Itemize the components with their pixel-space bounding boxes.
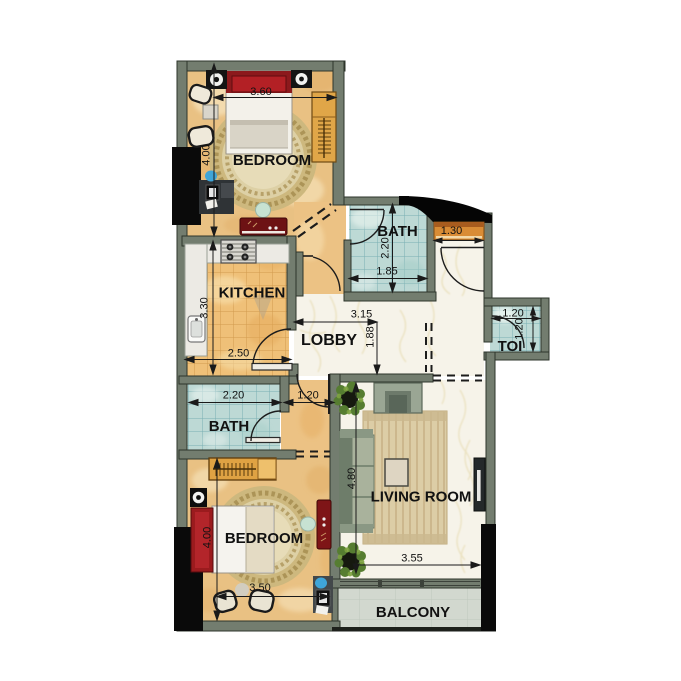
svg-text:1.20: 1.20 bbox=[514, 318, 526, 339]
svg-text:1.20: 1.20 bbox=[297, 390, 318, 402]
svg-text:LIVING ROOM: LIVING ROOM bbox=[371, 489, 472, 506]
svg-text:2.20: 2.20 bbox=[380, 237, 392, 258]
svg-text:2.50: 2.50 bbox=[228, 348, 249, 360]
svg-text:KITCHEN: KITCHEN bbox=[219, 285, 286, 302]
svg-text:1.30: 1.30 bbox=[441, 225, 462, 237]
svg-text:3.55: 3.55 bbox=[401, 553, 422, 565]
svg-text:4.00: 4.00 bbox=[202, 527, 214, 548]
svg-text:1.88: 1.88 bbox=[365, 326, 377, 347]
svg-text:LOBBY: LOBBY bbox=[301, 332, 357, 349]
svg-text:3.30: 3.30 bbox=[199, 297, 211, 318]
svg-text:4.00: 4.00 bbox=[201, 144, 213, 165]
svg-text:BEDROOM: BEDROOM bbox=[233, 152, 311, 169]
svg-text:2.20: 2.20 bbox=[223, 390, 244, 402]
svg-text:1.85: 1.85 bbox=[376, 266, 397, 278]
svg-text:3.15: 3.15 bbox=[351, 309, 372, 321]
svg-text:4.80: 4.80 bbox=[346, 468, 358, 489]
svg-text:3.60: 3.60 bbox=[250, 86, 271, 98]
svg-text:BEDROOM: BEDROOM bbox=[225, 530, 303, 547]
svg-text:1.20: 1.20 bbox=[502, 308, 523, 320]
svg-text:BATH: BATH bbox=[209, 418, 250, 435]
svg-text:BALCONY: BALCONY bbox=[376, 604, 450, 621]
svg-text:3.50: 3.50 bbox=[249, 582, 270, 594]
